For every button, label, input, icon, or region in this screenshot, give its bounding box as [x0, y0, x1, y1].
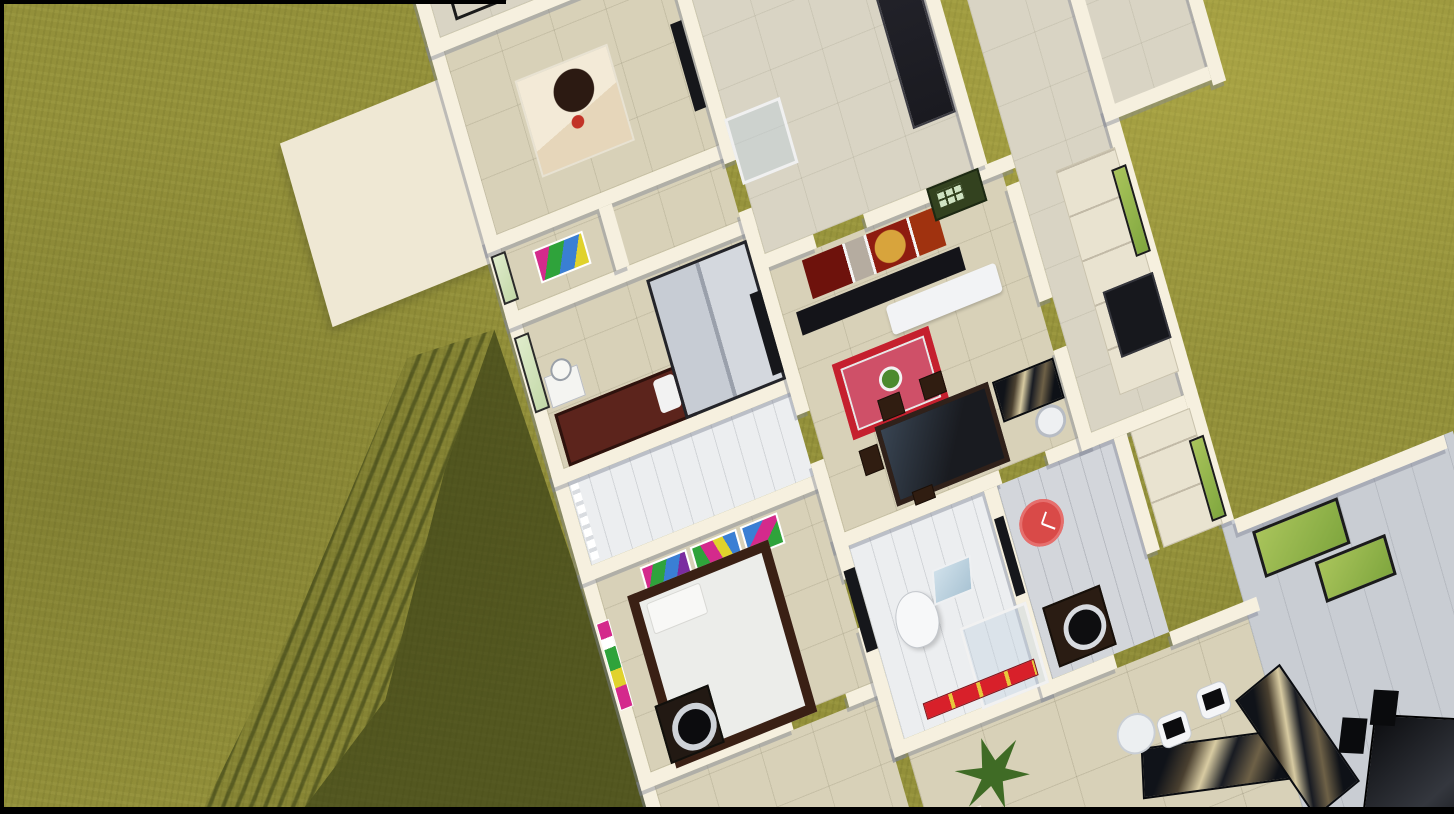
frame-bar-bottom — [0, 807, 1454, 814]
potted-plant — [876, 363, 905, 395]
render-viewport[interactable] — [0, 0, 1454, 814]
frame-bar-top — [0, 0, 506, 4]
clock-hand-minute — [1041, 523, 1055, 530]
washer-door-glass — [1058, 598, 1111, 657]
bar-stool-seat — [1162, 717, 1185, 740]
black-chair — [1370, 690, 1399, 727]
corner-dining-table — [1363, 714, 1454, 814]
door-glass-grid — [936, 182, 965, 207]
frame-bar-left — [0, 0, 4, 814]
black-chair — [1338, 717, 1367, 754]
bar-stool-seat — [1202, 688, 1225, 711]
